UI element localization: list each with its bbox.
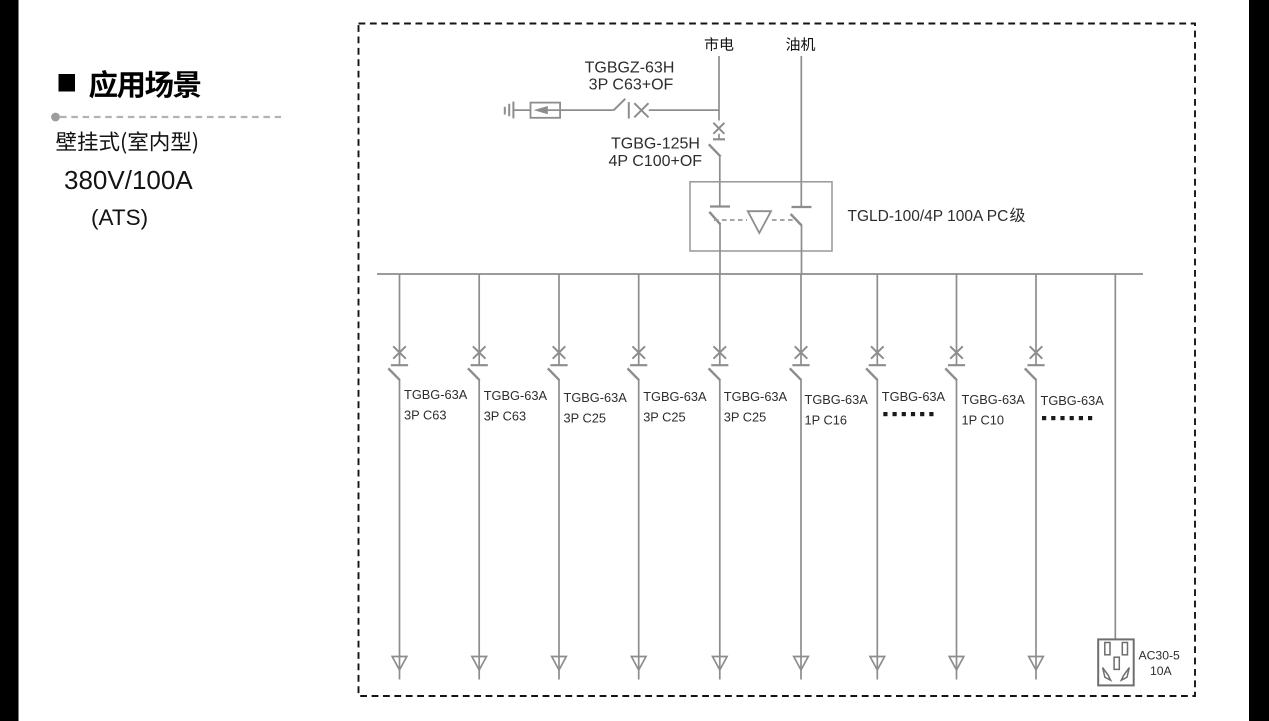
- svg-text:TGBG-63A: TGBG-63A: [1041, 393, 1105, 408]
- svg-text:4P C100+OF: 4P C100+OF: [609, 153, 703, 170]
- svg-text:(ATS): (ATS): [91, 205, 148, 230]
- svg-text:TGBG-63A: TGBG-63A: [882, 389, 946, 404]
- svg-text:10A: 10A: [1150, 664, 1173, 678]
- svg-text:TGBG-63A: TGBG-63A: [805, 392, 869, 407]
- svg-text:TGBG-63A: TGBG-63A: [404, 387, 468, 402]
- svg-text:3P C25: 3P C25: [564, 411, 606, 426]
- svg-text:3P C25: 3P C25: [724, 410, 766, 425]
- svg-text:TGBGZ-63H: TGBGZ-63H: [585, 60, 675, 77]
- svg-text:3P C63: 3P C63: [484, 409, 526, 424]
- svg-text:TGBG-63A: TGBG-63A: [643, 389, 707, 404]
- svg-text:TGBG-63A: TGBG-63A: [724, 389, 788, 404]
- svg-text:3P C63: 3P C63: [404, 408, 446, 423]
- svg-text:TGBG-63A: TGBG-63A: [484, 388, 548, 403]
- svg-text:3P C63+OF: 3P C63+OF: [589, 77, 674, 94]
- svg-text:380V/100A: 380V/100A: [64, 165, 193, 195]
- svg-text:3P C25: 3P C25: [643, 410, 685, 425]
- svg-text:1P C16: 1P C16: [805, 413, 847, 428]
- svg-text:AC30-5: AC30-5: [1139, 649, 1181, 663]
- svg-text:1P C10: 1P C10: [962, 413, 1004, 428]
- svg-text:TGBG-63A: TGBG-63A: [564, 390, 628, 405]
- svg-text:TGLD-100/4P 100A PC: TGLD-100/4P 100A PC: [848, 208, 1009, 225]
- svg-text:TGBG-63A: TGBG-63A: [962, 392, 1026, 407]
- svg-text:TGBG-125H: TGBG-125H: [611, 136, 700, 153]
